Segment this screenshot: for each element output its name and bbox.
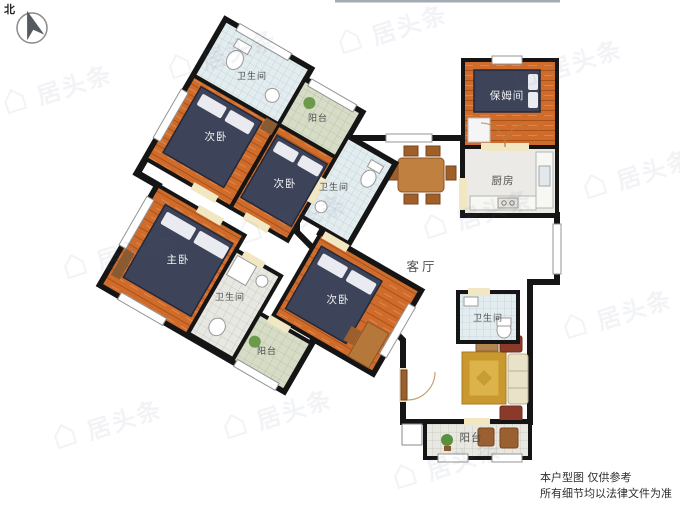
plant [441,434,453,446]
sofa [508,354,528,404]
svg-text:居头条: 居头条 [33,60,116,111]
dining-table [398,158,444,192]
floorplan-canvas: 卫生间 次卧 阳台 次卧 卫生间 主卧 卫生间 阳台 次卧 客厅 保姆间 厨房 … [0,0,680,510]
svg-text:居头条: 居头条 [83,395,166,446]
room-label-living: 客厅 [406,259,437,274]
room-label-bathroom-left: 卫生间 [215,291,245,303]
svg-text:居头条: 居头条 [368,0,451,51]
compass: 北 [4,2,47,43]
balcony-chair [500,428,518,448]
ac-unit-box [402,424,422,445]
svg-text:居头条: 居头条 [253,385,336,436]
room-label-bedroom-3: 次卧 [327,293,350,306]
room-label-bathroom-mid: 卫生间 [319,181,349,193]
disclaimer-line-2: 所有细节均以法律文件为准 [540,486,672,500]
room-label-bathroom-right: 卫生间 [473,312,503,324]
room-label-master: 主卧 [167,253,190,266]
top-edge-artifact [335,0,560,3]
disclaimer-line-1: 本户型图 仅供参考 [540,470,632,484]
armchair [500,406,522,422]
room-label-kitchen: 厨房 [492,174,515,187]
room-label-balcony-left: 阳台 [257,345,277,357]
room-label-balcony-top: 阳台 [308,112,328,124]
sofa-set [462,336,528,422]
room-label-nanny: 保姆间 [490,89,525,102]
room-label-bedroom-2: 次卧 [274,177,297,190]
svg-text:居头条: 居头条 [593,285,676,336]
room-label-bedroom-1: 次卧 [205,130,228,143]
svg-text:居头条: 居头条 [543,35,626,86]
entry-door [401,370,407,400]
disclaimer: 本户型图 仅供参考 所有细节均以法律文件为准 [540,470,672,500]
compass-north-label: 北 [4,2,15,16]
nanny-room [463,60,557,147]
dining-set [388,146,456,204]
svg-text:居头条: 居头条 [613,145,680,196]
sink [539,166,550,186]
room-label-bathroom-top: 卫生间 [237,70,267,82]
floorplan-page: 卫生间 次卧 阳台 次卧 卫生间 主卧 卫生间 阳台 次卧 客厅 保姆间 厨房 … [0,0,680,510]
